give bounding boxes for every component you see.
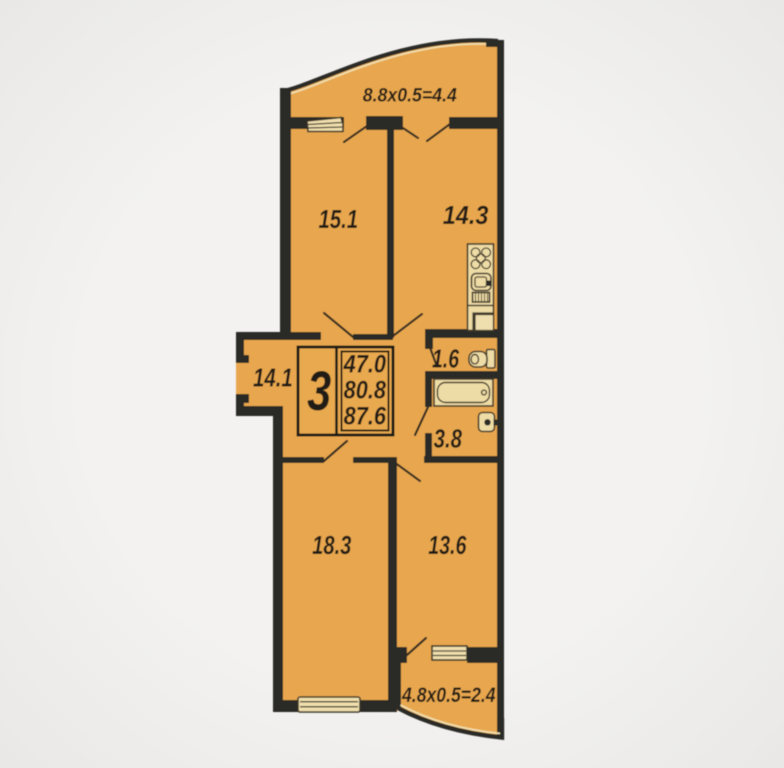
svg-text:8.8x0.5=4.4: 8.8x0.5=4.4 — [363, 84, 458, 106]
svg-text:87.6: 87.6 — [344, 402, 387, 430]
svg-text:3.8: 3.8 — [434, 424, 462, 453]
svg-text:47.0: 47.0 — [343, 350, 386, 378]
svg-text:13.6: 13.6 — [428, 530, 467, 559]
svg-text:1.6: 1.6 — [432, 344, 459, 373]
svg-text:14.3: 14.3 — [443, 202, 489, 230]
svg-text:15.1: 15.1 — [318, 205, 358, 234]
svg-text:18.3: 18.3 — [312, 531, 351, 560]
svg-text:14.1: 14.1 — [253, 363, 293, 392]
svg-text:3: 3 — [307, 360, 331, 422]
svg-text:80.8: 80.8 — [344, 376, 386, 404]
svg-text:4.8x0.5=2.4: 4.8x0.5=2.4 — [401, 684, 496, 708]
